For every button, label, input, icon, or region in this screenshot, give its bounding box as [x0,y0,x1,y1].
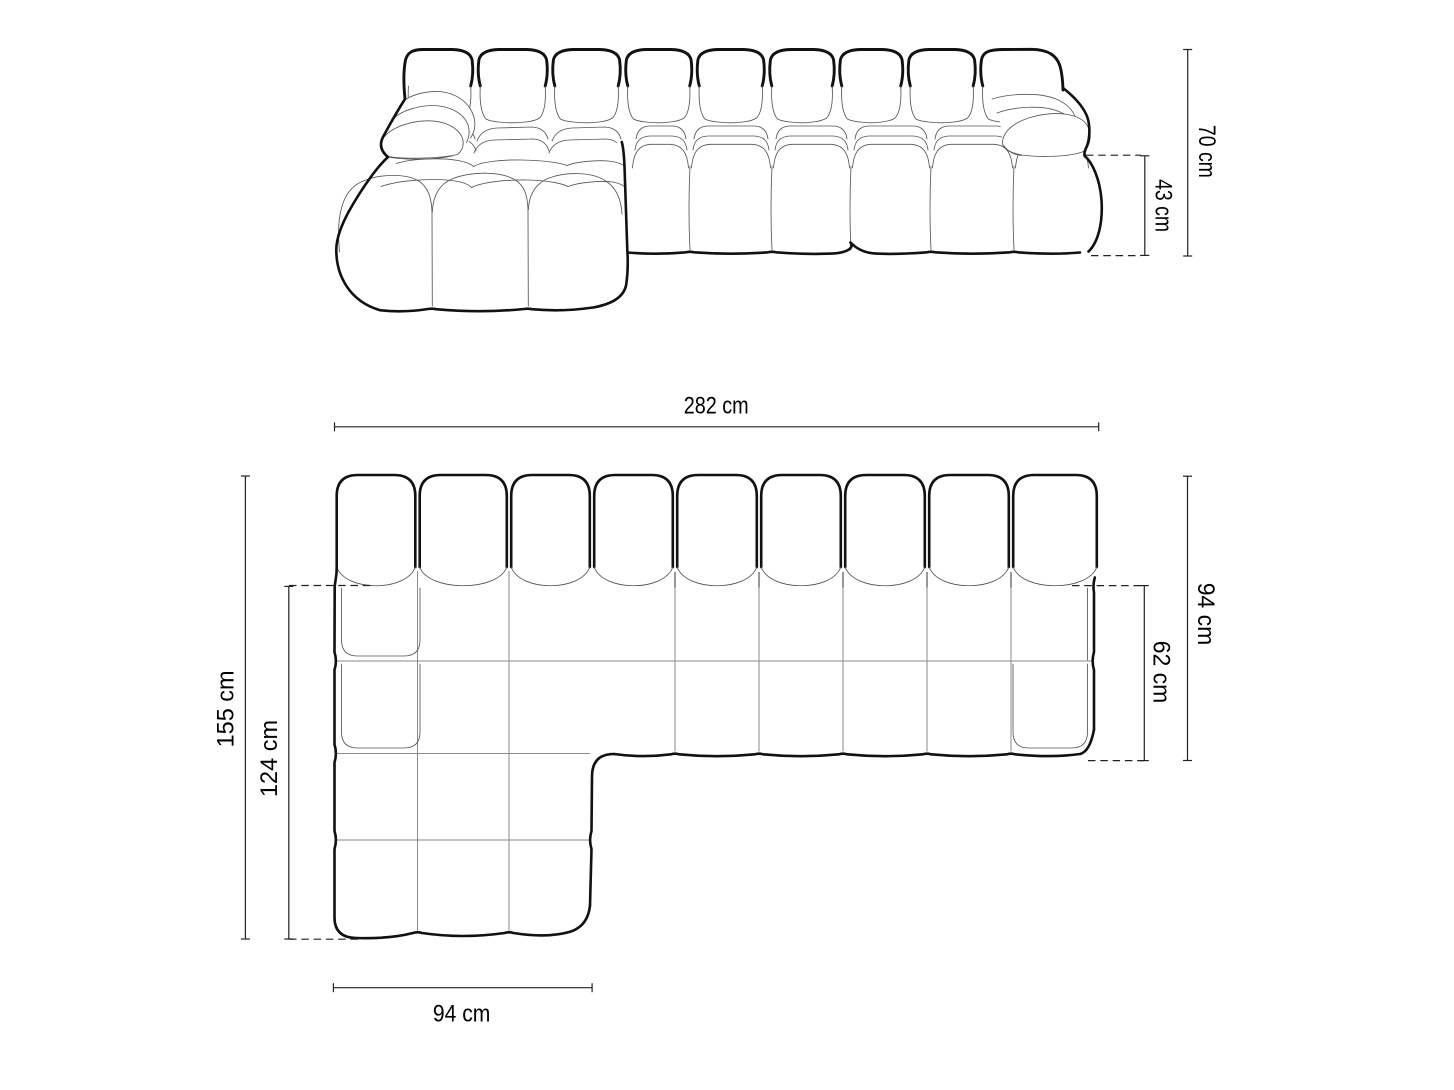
svg-text:62 cm: 62 cm [1147,641,1174,704]
svg-text:43 cm: 43 cm [1150,179,1177,232]
svg-text:282 cm: 282 cm [684,393,749,420]
svg-text:155 cm: 155 cm [213,670,240,747]
svg-text:70 cm: 70 cm [1193,125,1220,178]
svg-text:94 cm: 94 cm [1192,583,1219,646]
svg-text:94 cm: 94 cm [433,1001,491,1028]
svg-text:124 cm: 124 cm [256,720,283,797]
